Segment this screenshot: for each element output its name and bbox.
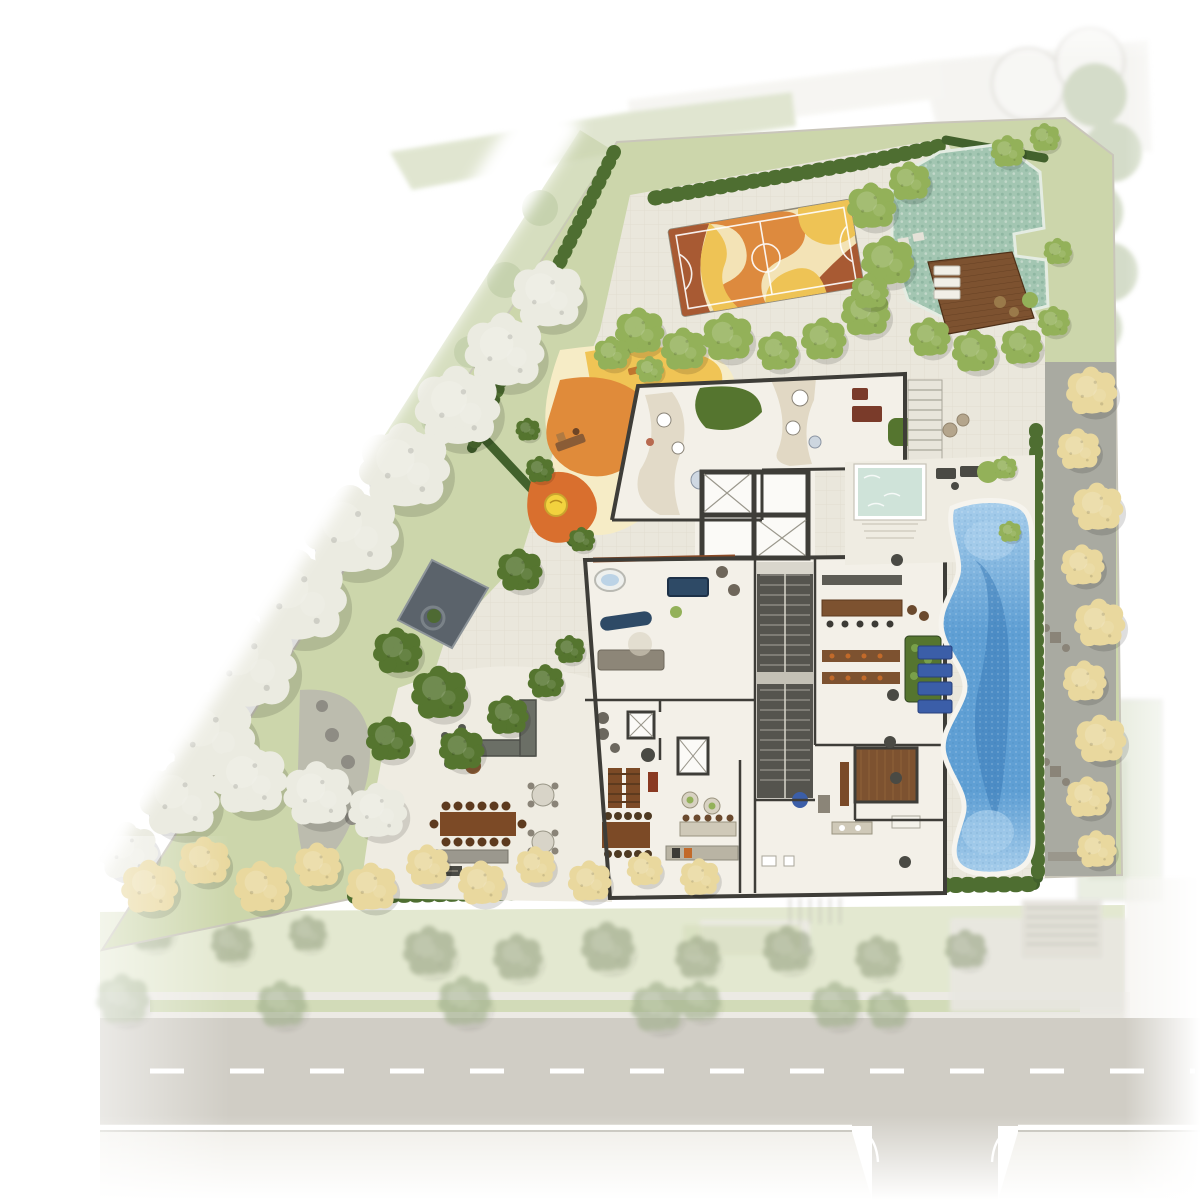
site-plan-illustration — [0, 0, 1200, 1200]
barrel — [907, 605, 917, 615]
access-ramp — [757, 562, 813, 798]
back-counter — [822, 575, 902, 585]
sink — [855, 825, 861, 831]
spa-lounger — [936, 468, 956, 479]
fade-right — [1125, 0, 1200, 1200]
rattan-chair — [994, 296, 1006, 308]
fade-top — [0, 0, 1200, 60]
spa-pool-water — [856, 466, 924, 518]
wash-station — [818, 795, 830, 813]
lounge-sofa-red — [852, 406, 882, 422]
massage-table — [892, 816, 920, 828]
salon-counter — [832, 822, 872, 834]
toilet-fixture — [784, 856, 794, 866]
spa-tub-water — [601, 574, 619, 586]
dining-table — [602, 822, 650, 848]
spa-lounger — [960, 466, 980, 477]
armchair — [716, 566, 728, 578]
barrel — [919, 611, 929, 621]
rattan-chair — [1009, 307, 1019, 317]
locker-strip — [840, 762, 849, 806]
red-cabinet — [648, 772, 658, 792]
sink — [839, 825, 845, 831]
armchair — [728, 584, 740, 596]
side-table — [951, 482, 959, 490]
deck-loungers — [934, 266, 960, 299]
beanbag — [646, 438, 654, 446]
deck-plant — [1022, 292, 1038, 308]
toilet-fixture — [762, 856, 776, 866]
building-ground-floor — [585, 374, 969, 898]
gym-chair — [610, 743, 620, 753]
kitchen-appliance — [672, 848, 680, 858]
patio-chair — [957, 414, 969, 426]
round-table — [641, 748, 655, 762]
pool-table — [668, 578, 708, 596]
ramp-landing-top — [757, 562, 813, 574]
rug — [628, 632, 652, 656]
table-plant — [687, 797, 694, 804]
pond-plant — [427, 609, 441, 623]
sofa — [598, 650, 664, 670]
plant-pot — [670, 606, 682, 618]
fade-bottom — [0, 1115, 1200, 1200]
buffet-counter — [680, 822, 736, 836]
sauna — [855, 748, 917, 802]
kitchen-oven — [684, 848, 692, 858]
playground-trampoline — [545, 494, 567, 516]
lounge-armchair-red — [852, 388, 868, 400]
table-plant — [709, 803, 716, 810]
patio-chair — [943, 423, 957, 437]
bar-island — [822, 600, 902, 616]
elevator-core — [702, 472, 808, 558]
ramp-landing-mid — [757, 672, 813, 684]
lobby-stairs — [908, 380, 942, 466]
